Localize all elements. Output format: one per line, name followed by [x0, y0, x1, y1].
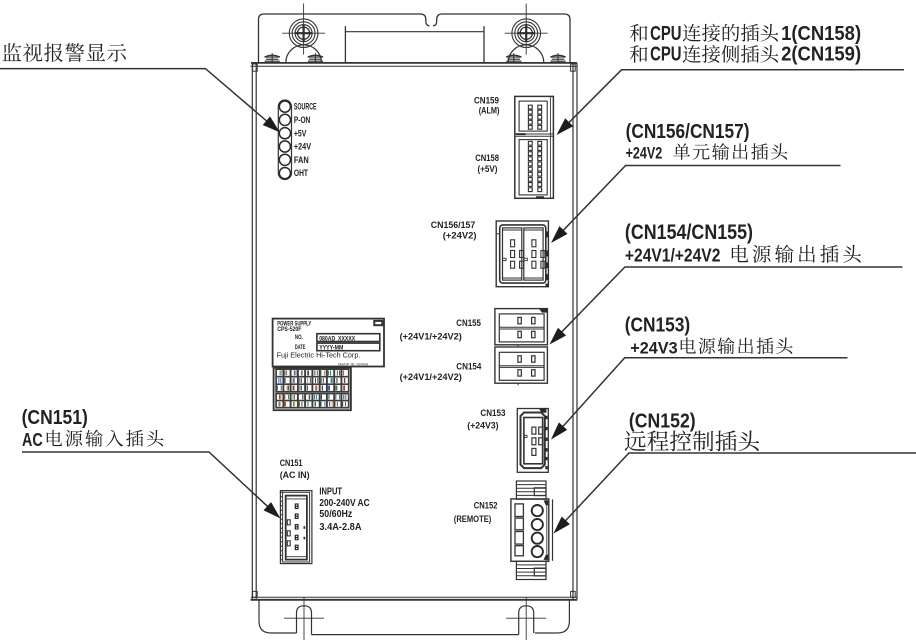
svg-text:CPS-520F: CPS-520F: [277, 327, 302, 333]
svg-text:Fuji Electric Hi-Tech Corp.: Fuji Electric Hi-Tech Corp.: [277, 353, 361, 360]
svg-text:2(CN159): 2(CN159): [781, 44, 861, 66]
svg-text:200-240V AC: 200-240V AC: [319, 498, 369, 509]
svg-text:50/60Hz: 50/60Hz: [319, 509, 352, 520]
svg-text:CN153: CN153: [480, 408, 505, 419]
svg-text:(CN152): (CN152): [629, 411, 696, 433]
svg-text:(ALM): (ALM): [479, 106, 500, 117]
svg-text:(CN153): (CN153): [625, 315, 691, 337]
svg-text:CN156/157: CN156/157: [431, 219, 476, 230]
svg-text:CN155: CN155: [456, 318, 481, 329]
svg-text:SOURCE: SOURCE: [294, 102, 317, 112]
svg-text:(CN154/CN155): (CN154/CN155): [625, 219, 753, 244]
svg-text:CN158: CN158: [475, 153, 499, 164]
svg-text:(+24V1/+24V2): (+24V1/+24V2): [400, 331, 462, 341]
svg-text:080AD XXXXX: 080AD XXXXX: [319, 335, 356, 342]
svg-text:1(CN158): 1(CN158): [781, 23, 861, 45]
svg-text:FAN: FAN: [294, 155, 309, 165]
svg-text:3.4A-2.8A: 3.4A-2.8A: [319, 522, 361, 533]
svg-text:NO.: NO.: [295, 335, 303, 341]
svg-text:CN151: CN151: [280, 457, 303, 468]
svg-text:(AC IN): (AC IN): [280, 469, 310, 480]
svg-text:CPU: CPU: [650, 23, 681, 45]
svg-text:INPUT: INPUT: [319, 486, 342, 497]
svg-text:(+24V3): (+24V3): [467, 420, 498, 431]
svg-text:(+24V1/+24V2): (+24V1/+24V2): [400, 372, 462, 382]
svg-text:P-ON: P-ON: [294, 115, 310, 125]
svg-text:+24V1/+24V2: +24V1/+24V2: [625, 245, 721, 266]
svg-text:OHT: OHT: [294, 168, 309, 178]
svg-text:+5V: +5V: [294, 128, 307, 138]
svg-text:MADE IN JAPAN: MADE IN JAPAN: [338, 362, 369, 367]
svg-text:CN152: CN152: [474, 501, 498, 512]
svg-text:(CN151): (CN151): [22, 407, 88, 429]
svg-text:(REMOTE): (REMOTE): [454, 513, 492, 524]
svg-text:YYYY-MM: YYYY-MM: [319, 345, 343, 352]
svg-text:+24V: +24V: [294, 142, 311, 152]
svg-text:+24V3: +24V3: [630, 339, 677, 358]
svg-text:CN154: CN154: [456, 362, 482, 373]
svg-text:CPU: CPU: [650, 44, 681, 66]
svg-text:(+24V2): (+24V2): [443, 230, 477, 241]
svg-text:AC: AC: [22, 430, 43, 450]
svg-text:(+5V): (+5V): [478, 164, 498, 175]
svg-text:DATE: DATE: [295, 345, 306, 351]
svg-text:+24V2: +24V2: [626, 143, 663, 162]
svg-text:(CN156/CN157): (CN156/CN157): [626, 121, 750, 143]
